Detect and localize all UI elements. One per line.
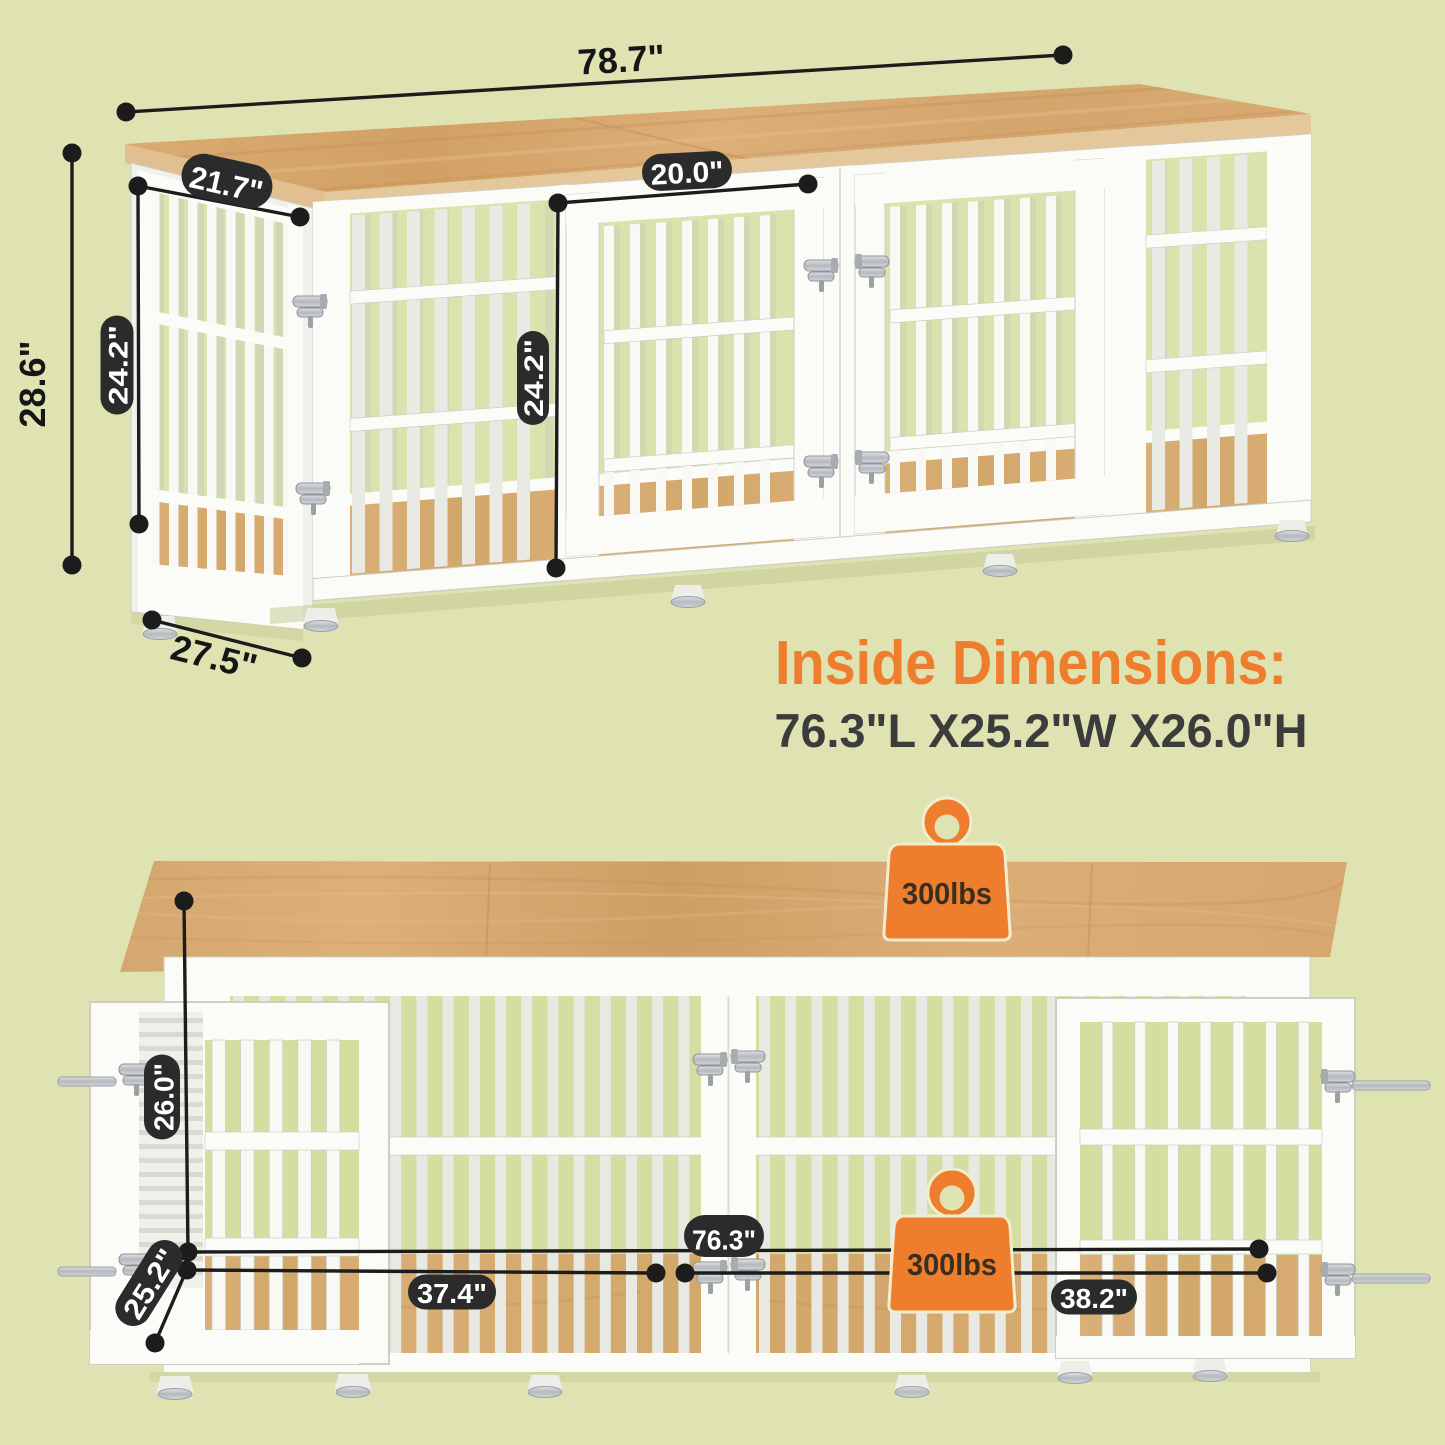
svg-text:26.0": 26.0" [149, 1063, 180, 1131]
svg-text:76.3"L X25.2"W X26.0"H: 76.3"L X25.2"W X26.0"H [775, 704, 1308, 757]
svg-text:78.7": 78.7" [576, 36, 665, 82]
svg-text:24.2": 24.2" [104, 325, 134, 405]
svg-text:300lbs: 300lbs [902, 876, 992, 911]
svg-text:37.4": 37.4" [417, 1278, 487, 1309]
svg-text:38.2": 38.2" [1060, 1283, 1128, 1314]
svg-text:76.3": 76.3" [692, 1224, 756, 1255]
svg-text:28.6": 28.6" [12, 340, 53, 427]
svg-text:20.0": 20.0" [650, 156, 725, 192]
svg-text:24.2": 24.2" [519, 339, 549, 417]
svg-text:300lbs: 300lbs [907, 1247, 997, 1282]
svg-text:Inside Dimensions:: Inside Dimensions: [775, 629, 1287, 698]
